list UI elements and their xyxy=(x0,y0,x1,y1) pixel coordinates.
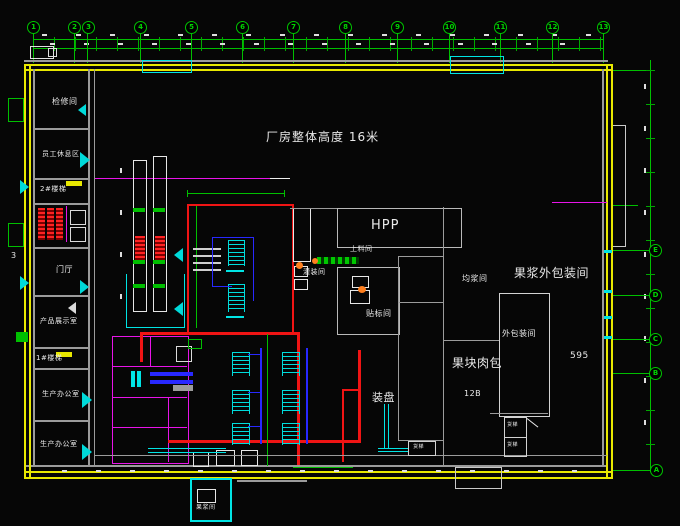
dock-door xyxy=(142,60,192,73)
partition-line xyxy=(112,366,187,367)
door-icon xyxy=(68,302,76,314)
grid-line xyxy=(552,33,553,63)
grid-bubble-1: 1 xyxy=(27,21,40,34)
pipe-blue xyxy=(212,237,254,238)
wall-line xyxy=(270,178,290,179)
pipe-blue xyxy=(212,286,232,287)
window-mark xyxy=(604,290,612,293)
pipe-red xyxy=(342,389,360,391)
grid-bubble-row-c: C xyxy=(649,333,662,346)
dim-line xyxy=(187,193,285,194)
pipe-red xyxy=(168,440,360,443)
grid-line xyxy=(74,33,75,63)
room-label-stair-1: 1#楼梯 xyxy=(36,355,62,362)
stair-icon xyxy=(66,181,82,186)
grid-line xyxy=(293,33,294,63)
pump-icon xyxy=(312,258,318,264)
wall-line xyxy=(33,295,90,297)
wall-line xyxy=(290,208,337,209)
pipe-red xyxy=(140,332,143,362)
door-icon xyxy=(80,152,90,168)
room-label-fruit-chunk: 果块肉包 xyxy=(452,357,502,369)
wall-line xyxy=(443,207,444,465)
room-label-staff-rest: 员工休息区 xyxy=(42,151,80,158)
pipe-blue xyxy=(248,426,260,427)
grid-line xyxy=(397,33,398,63)
room-label-lobby: 门厅 xyxy=(56,266,73,274)
section-mark-3: 3 xyxy=(11,252,17,260)
pump-icon xyxy=(296,262,303,269)
door-icon xyxy=(20,276,29,290)
conveyor-line xyxy=(384,404,385,449)
wall-marker xyxy=(8,98,24,122)
door-icon xyxy=(80,280,89,294)
conveyor-band xyxy=(153,208,165,212)
dim-text-row xyxy=(50,43,594,45)
dim-line xyxy=(612,295,650,296)
machine-hatch xyxy=(135,236,145,260)
wall-line xyxy=(24,60,608,62)
filling-machine-icon xyxy=(293,208,311,262)
grid-line xyxy=(603,33,604,63)
switchgear-icon xyxy=(38,208,45,240)
partition-line xyxy=(66,206,67,242)
door-icon xyxy=(82,392,92,408)
wall-line xyxy=(398,256,443,257)
grid-line xyxy=(191,33,192,63)
shelf-icon xyxy=(173,385,193,391)
grid-bubble-row-b: B xyxy=(649,367,662,380)
wall-line xyxy=(24,64,612,66)
grid-bubble-9: 9 xyxy=(391,21,404,34)
room-label-office-2: 生产办公室 xyxy=(40,441,78,448)
grid-bubble-5: 5 xyxy=(185,21,198,34)
inner-pack-room xyxy=(499,293,550,417)
ramp-outline xyxy=(612,125,626,247)
wall-line xyxy=(33,178,90,180)
pipe-blue xyxy=(212,237,213,287)
partition-line xyxy=(150,336,151,366)
dim-ticks xyxy=(646,70,655,470)
pipe-red xyxy=(358,350,361,443)
door-icon xyxy=(174,302,183,316)
wall-line xyxy=(24,69,612,71)
tank-outline xyxy=(126,274,127,328)
pump-unit-icon xyxy=(197,489,216,503)
wall-line xyxy=(95,455,607,456)
feed-conveyor xyxy=(317,257,359,264)
elevator-label: 货梯 xyxy=(507,423,518,428)
wall-marker xyxy=(16,332,28,342)
elevator-box: 货梯 xyxy=(504,417,527,438)
wall-line xyxy=(29,64,31,479)
room-label-maintenance: 检修间 xyxy=(52,98,78,106)
pipe-blue xyxy=(306,348,308,444)
wall-line xyxy=(33,347,90,349)
room-label-stair-2: 2#楼梯 xyxy=(40,186,66,193)
elevator-label: 货梯 xyxy=(507,443,518,448)
equipment-icon xyxy=(188,339,202,349)
dock-door xyxy=(450,56,504,74)
dim-line xyxy=(612,339,650,340)
door-icon xyxy=(78,104,86,116)
pipe-red xyxy=(140,332,300,335)
wall-line xyxy=(611,64,613,479)
grid-line xyxy=(140,33,141,63)
wall-line xyxy=(490,413,548,414)
apron-line xyxy=(237,480,307,482)
cad-canvas: 1 2 3 4 5 6 7 8 9 10 11 12 13 E D C B A xyxy=(0,0,680,526)
cabinet-icon xyxy=(70,227,86,242)
room-label-feed: 上料间 xyxy=(350,246,373,253)
pipe-blue xyxy=(260,348,262,444)
conveyor-line xyxy=(148,452,226,453)
heat-exchanger-icon xyxy=(228,284,245,312)
dim-text-col xyxy=(120,168,122,308)
wall-line xyxy=(33,203,90,205)
wall-line xyxy=(398,256,399,440)
room-label-outer-pack-small: 外包装间 xyxy=(502,330,536,338)
process-line-b xyxy=(153,156,167,312)
height-note: 厂房整体高度 16米 xyxy=(266,131,379,143)
equipment-tag xyxy=(226,270,244,272)
grid-bubble-row-a: A xyxy=(650,464,663,477)
equipment-icon xyxy=(137,371,141,387)
grid-bubble-row-d: D xyxy=(649,289,662,302)
window-mark xyxy=(604,316,612,319)
heat-exchanger-icon xyxy=(232,352,250,376)
switchgear-icon xyxy=(47,208,54,240)
room-label-pulp: 果浆间 xyxy=(196,505,216,511)
dim-line xyxy=(293,467,353,468)
grid-bubble-7: 7 xyxy=(287,21,300,34)
dim-line xyxy=(612,470,650,471)
wall-line xyxy=(33,247,90,249)
door-icon xyxy=(20,180,29,194)
wall-line xyxy=(398,302,443,303)
loading-dock xyxy=(455,467,502,489)
grid-line xyxy=(345,33,346,63)
grid-bubble-4: 4 xyxy=(134,21,147,34)
switchgear-icon xyxy=(56,208,63,240)
door-icon xyxy=(174,248,183,262)
wall-line xyxy=(443,340,499,341)
grid-bubble-row-e: E xyxy=(649,244,662,257)
grid-bubble-8: 8 xyxy=(339,21,352,34)
grid-line xyxy=(242,33,243,63)
dim-line xyxy=(267,334,268,466)
door-icon xyxy=(82,444,92,460)
conveyor-line xyxy=(388,404,389,449)
conveyor-line xyxy=(378,448,408,449)
room-label-filling: 灌装间 xyxy=(303,269,326,276)
wall-line xyxy=(33,420,90,422)
equipment-icon xyxy=(131,371,135,387)
room-label-outer-pack-big: 果浆外包装间 xyxy=(514,267,589,279)
wall-line xyxy=(602,69,604,467)
conveyor-band xyxy=(153,284,165,288)
window-mark xyxy=(604,336,612,339)
room-label-showroom: 产品展示室 xyxy=(40,318,78,325)
tank-outline xyxy=(184,274,185,328)
spec-text-block xyxy=(193,248,221,276)
bench-icon xyxy=(150,372,193,376)
partition-line xyxy=(112,427,187,428)
conveyor-band xyxy=(133,284,145,288)
pipe-blue xyxy=(248,354,260,355)
conveyor-line xyxy=(378,451,408,452)
partition-line xyxy=(112,397,187,398)
heat-exchanger-icon xyxy=(232,390,250,414)
window-mark xyxy=(604,250,612,253)
machine-icon xyxy=(294,279,308,290)
machine-icon xyxy=(241,450,258,466)
heat-exchanger-icon xyxy=(282,423,300,445)
grid-bubble-12: 12 xyxy=(546,21,559,34)
bench-icon xyxy=(150,380,193,384)
room-label-labeling: 贴标间 xyxy=(366,310,392,318)
cabinet-icon xyxy=(70,210,86,225)
pipe-blue xyxy=(248,392,260,393)
grid-bubble-3: 3 xyxy=(82,21,95,34)
wall-line xyxy=(24,64,26,479)
wall-line xyxy=(606,64,608,479)
wall-line xyxy=(33,368,90,370)
grid-bubble-11: 11 xyxy=(494,21,507,34)
pipe-red xyxy=(342,389,344,462)
wall-line xyxy=(24,477,612,479)
wall-marker xyxy=(8,223,24,247)
door-leaf xyxy=(527,418,539,427)
dim-text-row xyxy=(62,470,602,472)
grid-bubble-6: 6 xyxy=(236,21,249,34)
room-label-office-1: 生产办公室 xyxy=(42,391,80,398)
pump-icon xyxy=(358,286,366,293)
pulp-room-box: 果浆间 xyxy=(190,478,232,522)
conveyor-line xyxy=(148,448,226,449)
wall-line xyxy=(33,128,90,130)
area-label-tray: 装盘 xyxy=(372,392,395,403)
elevator-box: 货梯 xyxy=(504,437,527,457)
conveyor-band xyxy=(153,260,165,264)
grid-bubble-13: 13 xyxy=(597,21,610,34)
pipe-blue xyxy=(253,237,254,301)
partition-line xyxy=(552,202,607,203)
heat-exchanger-icon xyxy=(228,240,245,266)
wall-line xyxy=(94,69,95,465)
grid-bubble-2: 2 xyxy=(68,21,81,34)
room-label-hpp: HPP xyxy=(371,219,399,232)
machine-hatch xyxy=(155,236,165,260)
grid-line xyxy=(87,33,88,63)
elevator-box: 货梯 xyxy=(408,441,436,456)
grid-bubble-10: 10 xyxy=(443,21,456,34)
elevator-label: 货梯 xyxy=(413,445,424,450)
dim-line xyxy=(612,250,650,251)
tank-outline xyxy=(126,327,185,328)
conveyor-band xyxy=(133,208,145,212)
conveyor-band xyxy=(133,260,145,264)
truck-cab-icon xyxy=(48,48,57,57)
heat-exchanger-icon xyxy=(282,352,300,376)
equipment-tag xyxy=(226,316,244,318)
room-number-12b: 12B xyxy=(464,390,481,398)
dim-text-row xyxy=(42,34,594,36)
dim-595: 595 xyxy=(570,352,589,361)
dim-line xyxy=(612,373,650,374)
heat-exchanger-icon xyxy=(282,390,300,414)
room-label-homogenize: 均浆间 xyxy=(462,275,488,283)
